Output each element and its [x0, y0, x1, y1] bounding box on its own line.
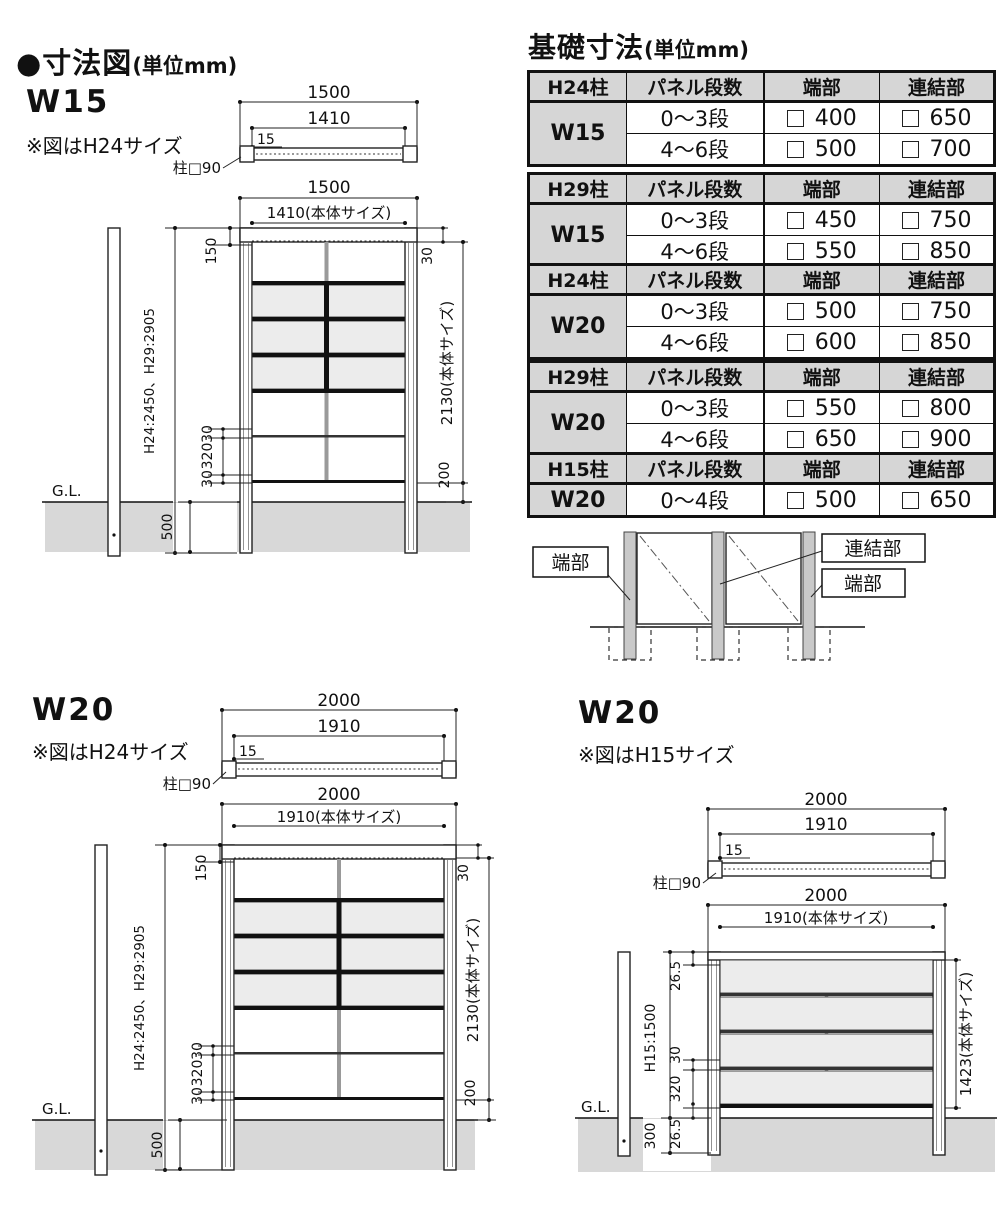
- foundation-title-unit: (単位mm): [644, 38, 749, 62]
- header-edge: 端部: [764, 72, 880, 102]
- foundation-table-h15-w20: H15柱 パネル段数 端部 連結部 W20 0〜4段 500 650: [527, 452, 996, 518]
- dim-label: 500: [150, 1132, 166, 1159]
- header-edge: 端部: [764, 362, 880, 392]
- edge-label: 端部: [844, 573, 882, 595]
- page-title-unit: (単位mm): [132, 54, 237, 78]
- square-dim-icon: [787, 400, 804, 417]
- cell-edge-value: 500: [764, 295, 880, 327]
- edge-value: 600: [815, 330, 857, 355]
- square-dim-icon: [902, 492, 919, 509]
- cell-steps: 0〜4段: [627, 484, 764, 517]
- dim-label: 2130(本体サイズ): [438, 301, 456, 425]
- cell-edge-value: 500: [764, 484, 880, 517]
- header-joint: 連結部: [880, 174, 995, 204]
- header-post-type: H29柱: [529, 362, 627, 392]
- w20-h15-dimension-drawing: 2000 1910 15 柱□90 2000 1910(本体サイズ): [575, 693, 1000, 1209]
- square-dim-icon: [787, 141, 804, 158]
- post-size-label: 柱□90: [163, 775, 211, 793]
- edge-value: 550: [815, 239, 857, 264]
- dim-label: 2130(本体サイズ): [464, 918, 482, 1042]
- joint-value: 800: [930, 396, 972, 421]
- edge-value: 400: [815, 106, 857, 131]
- header-post-type: H15柱: [529, 454, 627, 484]
- cell-width: W15: [529, 102, 627, 166]
- dim-label: 1910: [317, 717, 360, 737]
- square-dim-icon: [787, 334, 804, 351]
- header-steps: パネル段数: [627, 362, 764, 392]
- header-edge: 端部: [764, 174, 880, 204]
- dim-label: 30: [420, 247, 436, 265]
- ground-level-label: G.L.: [581, 1098, 611, 1116]
- square-dim-icon: [902, 243, 919, 260]
- dim-label: 1500: [307, 178, 350, 198]
- dim-label: 320: [668, 1076, 684, 1103]
- dim-label: 30: [456, 864, 472, 882]
- dim-label: 30: [190, 1087, 206, 1105]
- cell-steps: 4〜6段: [627, 327, 764, 359]
- dim-label: H15:1500: [643, 1004, 659, 1073]
- post-size-label: 柱□90: [653, 874, 701, 892]
- dim-label: 15: [239, 744, 257, 760]
- dim-label: 320: [200, 443, 216, 470]
- ground-level-label: G.L.: [52, 482, 82, 500]
- dim-label: 15: [725, 843, 743, 859]
- header-steps: パネル段数: [627, 72, 764, 102]
- foundation-table-h24-w15: H24柱 パネル段数 端部 連結部 W15 0〜3段 400 650 4〜6段 …: [527, 70, 996, 167]
- edge-value: 500: [815, 488, 857, 513]
- foundation-title: 基礎寸法(単位mm): [528, 26, 749, 66]
- edge-label: 端部: [551, 552, 589, 574]
- dim-label: H24:2450、H29:2905: [132, 925, 148, 1071]
- header-steps: パネル段数: [627, 454, 764, 484]
- cell-joint-value: 750: [880, 295, 995, 327]
- cell-width: W15: [529, 204, 627, 268]
- edge-value: 550: [815, 396, 857, 421]
- edge-joint-posts-diagram: 端部 連結部 端部: [530, 527, 995, 672]
- joint-value: 750: [930, 299, 972, 324]
- cell-steps: 4〜6段: [627, 424, 764, 456]
- square-dim-icon: [787, 110, 804, 127]
- cell-edge-value: 400: [764, 102, 880, 134]
- dim-label: 200: [437, 462, 453, 489]
- edge-value: 500: [815, 137, 857, 162]
- w20-h24-dimension-drawing: 2000 1910 15 柱□90 2000 1910(本体サイズ): [30, 693, 500, 1209]
- dim-label: 1910(本体サイズ): [764, 909, 888, 927]
- dim-label: 150: [204, 238, 220, 265]
- joint-label: 連結部: [844, 538, 901, 560]
- edge-value: 450: [815, 208, 857, 233]
- foundation-table-h29-w15: H29柱 パネル段数 端部 連結部 W15 0〜3段 450 750 4〜6段 …: [527, 172, 996, 269]
- cell-edge-value: 450: [764, 204, 880, 236]
- square-dim-icon: [902, 212, 919, 229]
- joint-value: 850: [930, 239, 972, 264]
- header-joint: 連結部: [880, 454, 995, 484]
- edge-value: 500: [815, 299, 857, 324]
- joint-value: 650: [930, 488, 972, 513]
- joint-value: 850: [930, 330, 972, 355]
- square-dim-icon: [787, 212, 804, 229]
- square-dim-icon: [902, 431, 919, 448]
- cell-edge-value: 500: [764, 134, 880, 166]
- dim-label: 2000: [317, 785, 360, 805]
- header-post-type: H29柱: [529, 174, 627, 204]
- cell-edge-value: 600: [764, 327, 880, 359]
- header-joint: 連結部: [880, 265, 995, 295]
- joint-value: 750: [930, 208, 972, 233]
- header-post-type: H24柱: [529, 72, 627, 102]
- dim-label: 1410: [307, 109, 350, 129]
- joint-value: 700: [930, 137, 972, 162]
- square-dim-icon: [902, 303, 919, 320]
- dim-label: 1910(本体サイズ): [277, 808, 401, 826]
- dim-label: 30: [190, 1042, 206, 1060]
- dim-label: 30: [668, 1046, 684, 1064]
- cell-steps: 0〜3段: [627, 295, 764, 327]
- dim-label: 1500: [307, 83, 350, 103]
- dimension-sheet: ●寸法図(単位mm) W15 ※図はH24サイズ 1500 1410 15 柱□…: [0, 0, 1000, 1209]
- joint-post: [712, 532, 724, 659]
- edge-value: 650: [815, 427, 857, 452]
- dim-label: 30: [200, 470, 216, 488]
- cell-width: W20: [529, 295, 627, 359]
- end-post: [803, 532, 815, 659]
- cell-steps: 0〜3段: [627, 392, 764, 424]
- header-post-type: H24柱: [529, 265, 627, 295]
- foundation-table-h24-w20: H24柱 パネル段数 端部 連結部 W20 0〜3段 500 750 4〜6段 …: [527, 263, 996, 360]
- square-dim-icon: [787, 492, 804, 509]
- foundation-table-h29-w20: H29柱 パネル段数 端部 連結部 W20 0〜3段 550 800 4〜6段 …: [527, 360, 996, 457]
- dim-label: 320: [190, 1060, 206, 1087]
- dim-label: 500: [160, 514, 176, 541]
- dim-label: 200: [463, 1080, 479, 1107]
- square-dim-icon: [787, 303, 804, 320]
- dim-label: 1410(本体サイズ): [267, 204, 391, 222]
- dim-label: 15: [257, 132, 275, 148]
- header-edge: 端部: [764, 454, 880, 484]
- square-dim-icon: [902, 400, 919, 417]
- square-dim-icon: [902, 334, 919, 351]
- header-steps: パネル段数: [627, 174, 764, 204]
- page-title: ●寸法図(単位mm): [16, 40, 237, 82]
- joint-value: 900: [930, 427, 972, 452]
- square-dim-icon: [902, 110, 919, 127]
- dim-label: 2000: [317, 691, 360, 711]
- w15-dimension-drawing: 1500 1410 15 柱□90 1500 1410(本体サイズ): [40, 85, 470, 633]
- square-dim-icon: [787, 431, 804, 448]
- dim-label: 1910: [804, 815, 847, 835]
- dim-label: 150: [194, 855, 210, 882]
- cell-joint-value: 700: [880, 134, 995, 166]
- square-dim-icon: [787, 243, 804, 260]
- cell-joint-value: 850: [880, 327, 995, 359]
- cell-joint-value: 650: [880, 102, 995, 134]
- cell-joint-value: 800: [880, 392, 995, 424]
- dim-label: 2000: [804, 886, 847, 906]
- post-size-label: 柱□90: [173, 159, 221, 177]
- dim-label: 1423(本体サイズ): [957, 972, 975, 1096]
- cell-width: W20: [529, 392, 627, 456]
- cell-joint-value: 750: [880, 204, 995, 236]
- joint-value: 650: [930, 106, 972, 131]
- foundation-title-text: 基礎寸法: [528, 31, 644, 64]
- cell-steps: 4〜6段: [627, 134, 764, 166]
- cell-steps: 0〜3段: [627, 102, 764, 134]
- header-edge: 端部: [764, 265, 880, 295]
- dim-label: H24:2450、H29:2905: [142, 308, 158, 454]
- cell-edge-value: 550: [764, 392, 880, 424]
- cell-edge-value: 650: [764, 424, 880, 456]
- header-joint: 連結部: [880, 72, 995, 102]
- dim-label: 30: [200, 425, 216, 443]
- cell-width: W20: [529, 484, 627, 517]
- dim-label: 2000: [804, 790, 847, 810]
- header-steps: パネル段数: [627, 265, 764, 295]
- header-joint: 連結部: [880, 362, 995, 392]
- cell-steps: 0〜3段: [627, 204, 764, 236]
- cell-joint-value: 900: [880, 424, 995, 456]
- ground-level-label: G.L.: [42, 1100, 72, 1118]
- page-title-text: ●寸法図: [16, 46, 132, 80]
- square-dim-icon: [902, 141, 919, 158]
- cell-joint-value: 650: [880, 484, 995, 517]
- dim-label: 300: [643, 1123, 659, 1150]
